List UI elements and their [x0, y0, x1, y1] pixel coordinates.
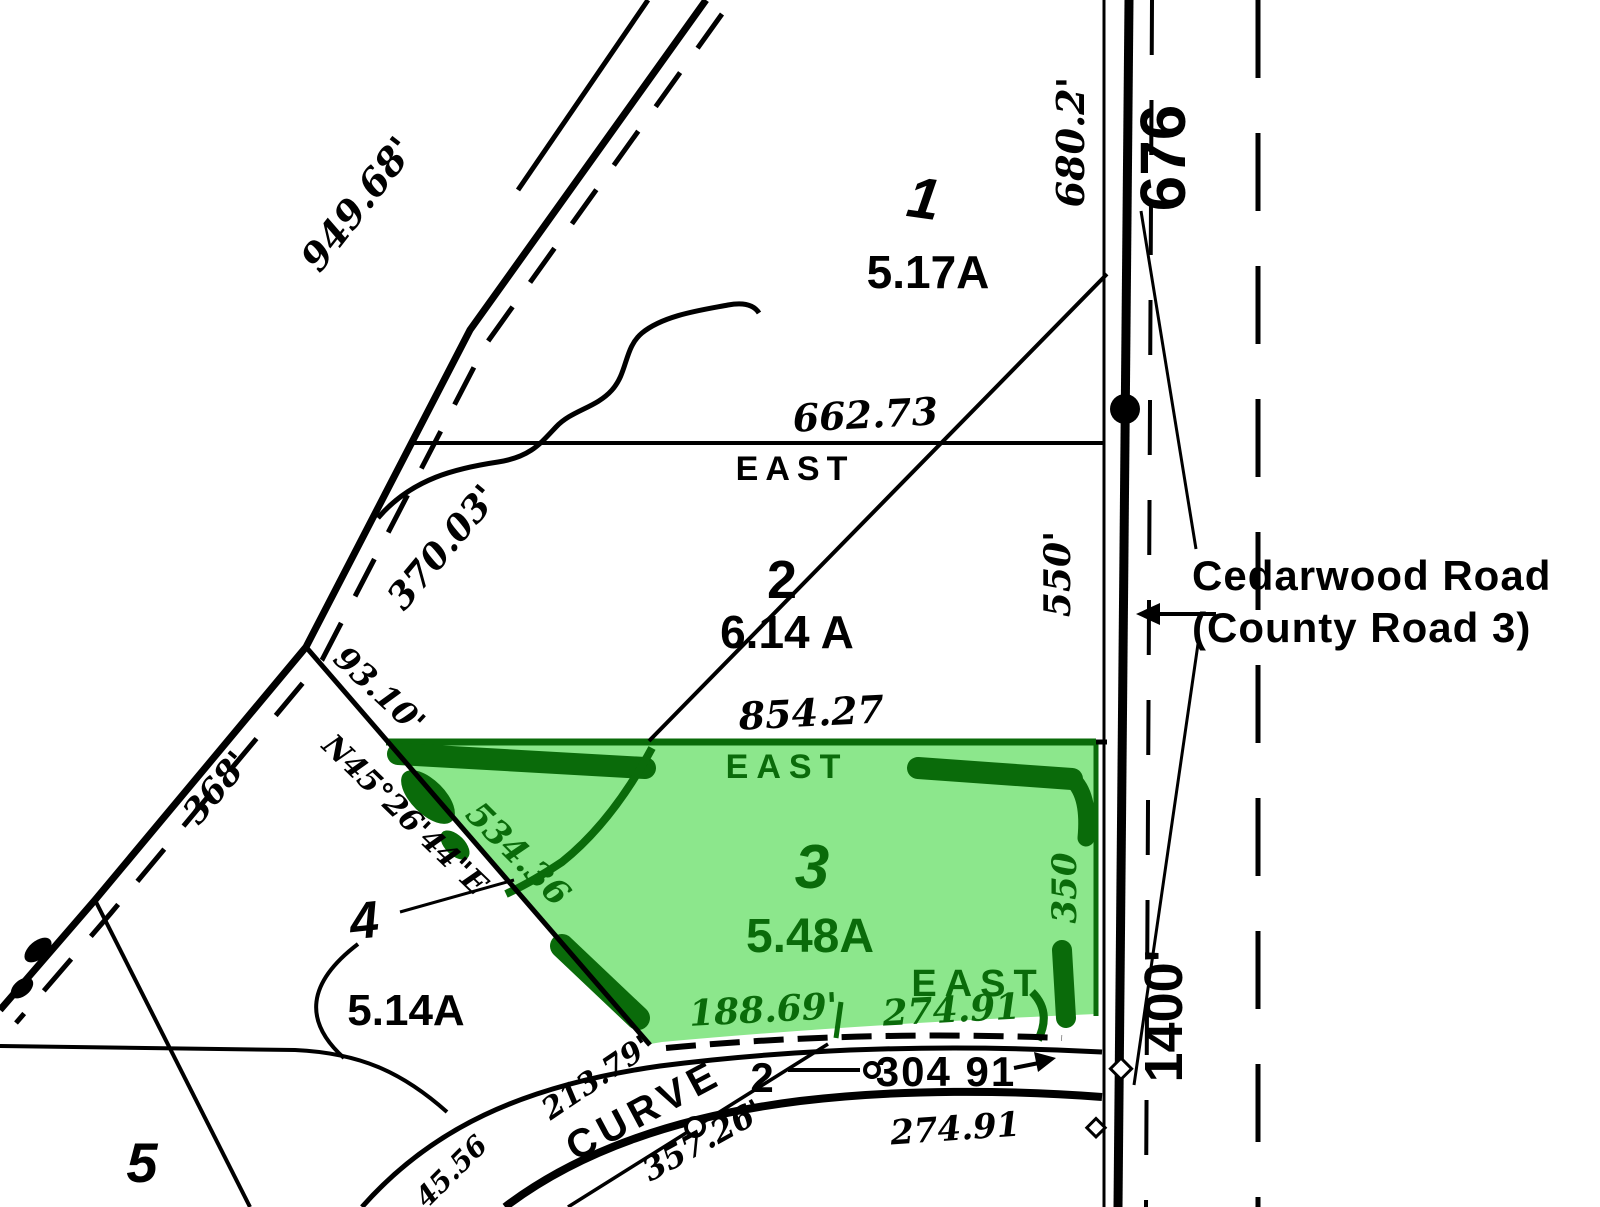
leader-line-north	[1141, 211, 1196, 549]
route-marker-676: 676	[1127, 105, 1199, 212]
creek-squiggle	[378, 304, 759, 518]
road-edge-blob-east	[1062, 950, 1066, 1018]
parcel-3-area: 5.48A	[746, 910, 874, 963]
road-name-line2: (County Road 3)	[1192, 604, 1531, 651]
dim-350: 350	[1045, 852, 1085, 923]
labels: 1 5.17A 2 6.14 A 3 5.48A 4 5.14A 5 EAST …	[126, 77, 1551, 1207]
long-diagonal-line	[649, 274, 1107, 741]
parcel5-north-line	[0, 1046, 447, 1112]
dim-550: 550'	[1037, 531, 1079, 617]
parcel-4-area: 5.14A	[347, 986, 464, 1035]
driveway-bar-west	[398, 754, 645, 768]
nw-road-edge-upper	[518, 0, 648, 190]
dim-304-91: 304 91	[876, 1048, 1016, 1095]
road-name-line1: Cedarwood Road	[1192, 552, 1551, 599]
parcel-2-number: 2	[767, 550, 797, 610]
parcel-1-number: 1	[903, 164, 944, 233]
dim-680-2: 680.2'	[1048, 77, 1093, 208]
route-marker-1400: 1400'	[1134, 950, 1194, 1083]
parcel-2-area: 6.14 A	[720, 606, 854, 658]
parcel-1-area: 5.17A	[867, 246, 990, 298]
driveway-bar-east	[918, 768, 1072, 779]
parcel-4-number: 4	[346, 891, 382, 952]
curve-number: 2	[750, 1054, 773, 1101]
parcel-3-number: 3	[795, 833, 829, 902]
parcel45-boundary	[95, 900, 250, 1207]
dim-662-73: 662.73	[791, 388, 939, 441]
dim-274-91-below: 274.91	[888, 1105, 1022, 1154]
dim-854-27: 854.27	[736, 686, 885, 739]
intersection-diamond-2	[1087, 1119, 1105, 1137]
road-monument-dot	[1110, 394, 1140, 424]
dim-949-68: 949.68'	[291, 128, 423, 279]
intersection-diamond-1	[1110, 1058, 1131, 1079]
dim-274-91-green: 274.91	[880, 985, 1021, 1034]
dim-45-56: 45.56	[409, 1129, 494, 1207]
dimension-arrowhead-304	[1034, 1052, 1056, 1072]
plat-map: 1 5.17A 2 6.14 A 3 5.48A 4 5.14A 5 EAST …	[0, 0, 1600, 1207]
east-label-parcel3-top: EAST	[726, 748, 849, 786]
plat-map-page: 1 5.17A 2 6.14 A 3 5.48A 4 5.14A 5 EAST …	[0, 0, 1600, 1207]
east-label-parcel1: EAST	[736, 450, 855, 488]
dim-188-69: 188.69'	[688, 985, 839, 1035]
parcel-5-number: 5	[126, 1131, 158, 1194]
